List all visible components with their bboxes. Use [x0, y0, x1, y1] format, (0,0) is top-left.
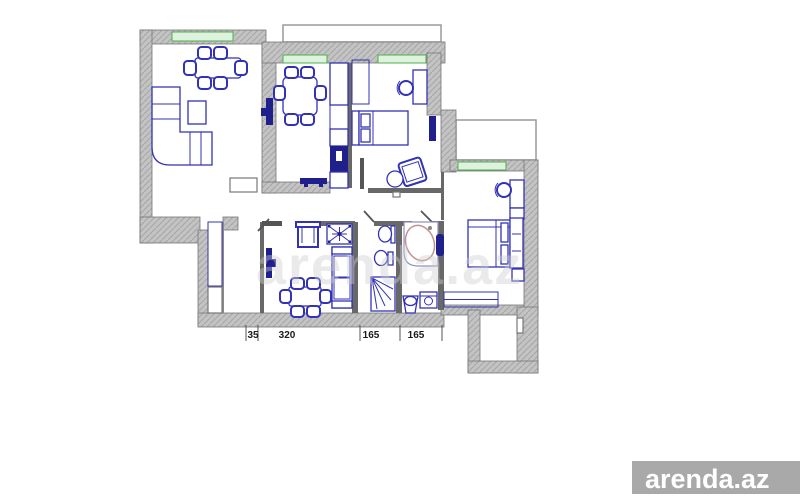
chair [291, 306, 304, 317]
tv-foot [319, 184, 323, 187]
desk [413, 70, 427, 104]
tv-icon [300, 178, 327, 184]
watermark-brand: arenda.az [645, 464, 770, 494]
wall [223, 217, 238, 230]
kitchen-counter [330, 172, 348, 188]
center-watermark: arenda.az [256, 236, 523, 296]
chair [274, 86, 285, 100]
desk-chair [399, 81, 413, 95]
window [172, 32, 233, 41]
tv-foot [304, 184, 308, 187]
door-stop [393, 192, 400, 197]
wall [198, 230, 208, 325]
wall [198, 313, 444, 327]
bed-headboard [352, 111, 359, 145]
chair [214, 77, 227, 89]
chair [307, 306, 320, 317]
kitchen-counter [330, 63, 348, 105]
side-table [387, 171, 403, 187]
coffee-table [188, 101, 206, 124]
door-leaf [360, 158, 364, 189]
wall [140, 217, 200, 243]
cabinet [208, 287, 222, 313]
watermark-badge: arenda.az [632, 461, 800, 494]
balcony-right [456, 120, 536, 160]
faucet-icon [336, 151, 342, 161]
stove-icon [330, 105, 348, 129]
door-leaf [421, 211, 432, 222]
sofa-armrest [332, 301, 352, 308]
dresser [230, 178, 257, 192]
room-kitchen [274, 63, 348, 188]
dim-label: 35 [247, 330, 259, 341]
room-bedroom-top [352, 60, 436, 197]
partition [368, 188, 444, 193]
balcony-top [283, 25, 441, 42]
desk [510, 180, 524, 208]
door-leaf [262, 221, 282, 226]
partition [441, 172, 444, 220]
hallway-closet [208, 222, 222, 313]
door-leaf [364, 211, 374, 222]
tub-faucet [428, 226, 432, 230]
kitchen-counter [330, 129, 348, 146]
floor-plan-image: 35 320 165 165 arenda.az arenda.az [0, 0, 800, 500]
wall [427, 53, 441, 115]
corner-sofa [152, 87, 212, 165]
room-living-dining [152, 47, 273, 192]
window [458, 162, 506, 170]
chair [285, 114, 298, 125]
chair [184, 61, 196, 75]
entrance-notch [517, 318, 523, 333]
chair [315, 86, 326, 100]
floor-plan-svg: 35 320 165 165 arenda.az arenda.az [0, 0, 800, 500]
tv-icon [266, 98, 273, 125]
chair [285, 67, 298, 78]
chair [198, 77, 211, 89]
corner-dot [349, 225, 352, 228]
pillow [361, 129, 370, 142]
corner-dot [328, 225, 331, 228]
chair [198, 47, 211, 59]
tv-bracket [261, 108, 266, 116]
dim-label: 165 [363, 330, 380, 341]
chair [301, 114, 314, 125]
wardrobe [352, 60, 369, 104]
window [283, 55, 327, 63]
dim-label: 320 [279, 330, 296, 341]
desk-chair [497, 183, 511, 197]
chair [235, 61, 247, 75]
wardrobe [208, 222, 222, 286]
kitchen-table [283, 77, 317, 115]
wall [140, 30, 152, 243]
sink-bowl [405, 297, 417, 306]
chair [214, 47, 227, 59]
pillow [361, 114, 370, 127]
wall [524, 160, 538, 315]
dim-label: 165 [408, 330, 425, 341]
wall [468, 361, 538, 373]
window [378, 55, 426, 63]
chair [301, 67, 314, 78]
tv-icon [429, 116, 436, 141]
